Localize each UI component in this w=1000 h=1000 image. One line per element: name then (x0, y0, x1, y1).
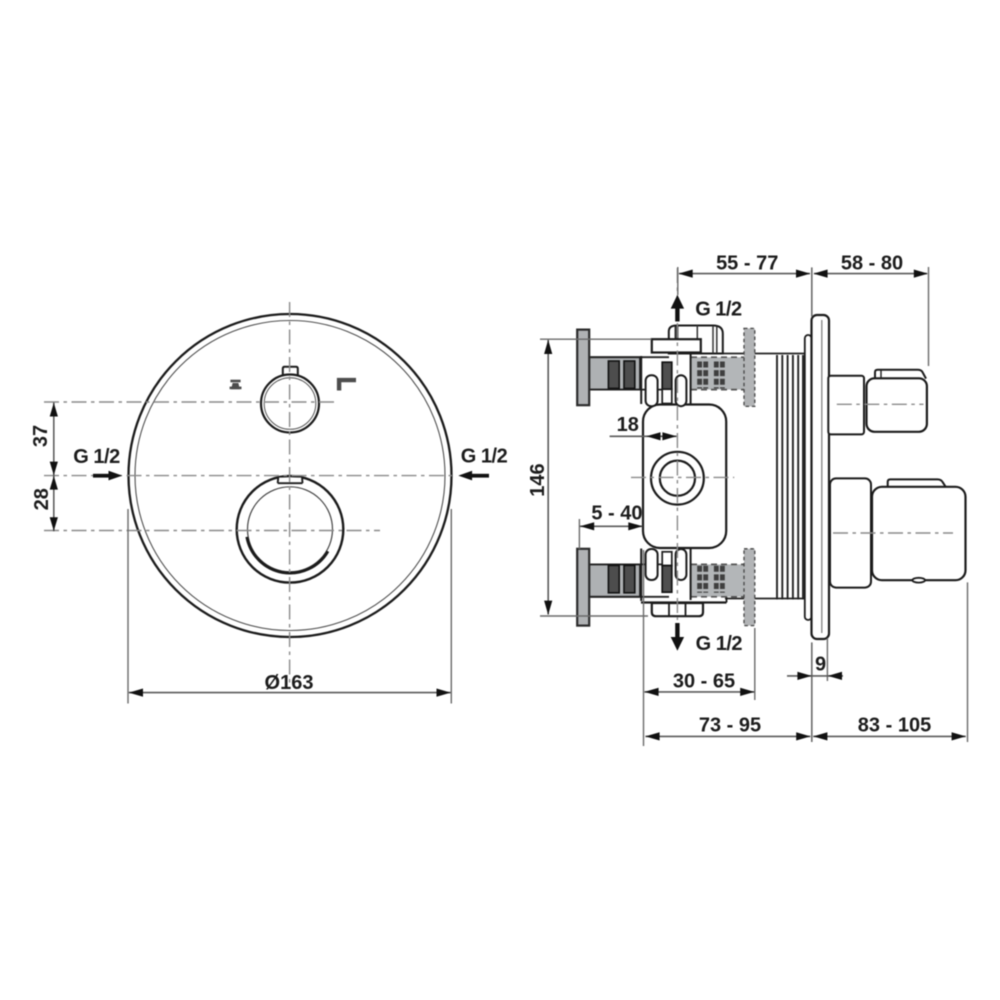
svg-text:55 - 77: 55 - 77 (716, 253, 778, 275)
svg-text:73 - 95: 73 - 95 (699, 714, 761, 736)
svg-text:83 - 105: 83 - 105 (858, 714, 931, 736)
svg-text:9: 9 (815, 654, 826, 676)
svg-text:5 - 40: 5 - 40 (591, 503, 642, 525)
svg-text:Ø163: Ø163 (265, 672, 314, 694)
svg-text:G 1/2: G 1/2 (696, 633, 743, 655)
svg-text:146: 146 (527, 463, 549, 496)
svg-text:30 - 65: 30 - 65 (673, 670, 735, 692)
svg-text:G 1/2: G 1/2 (695, 299, 742, 321)
svg-text:37: 37 (30, 425, 52, 447)
svg-text:28: 28 (31, 488, 53, 510)
svg-text:G 1/2: G 1/2 (461, 446, 508, 468)
svg-text:18: 18 (617, 414, 639, 436)
svg-text:58 - 80: 58 - 80 (841, 253, 903, 275)
svg-text:G 1/2: G 1/2 (73, 446, 120, 468)
